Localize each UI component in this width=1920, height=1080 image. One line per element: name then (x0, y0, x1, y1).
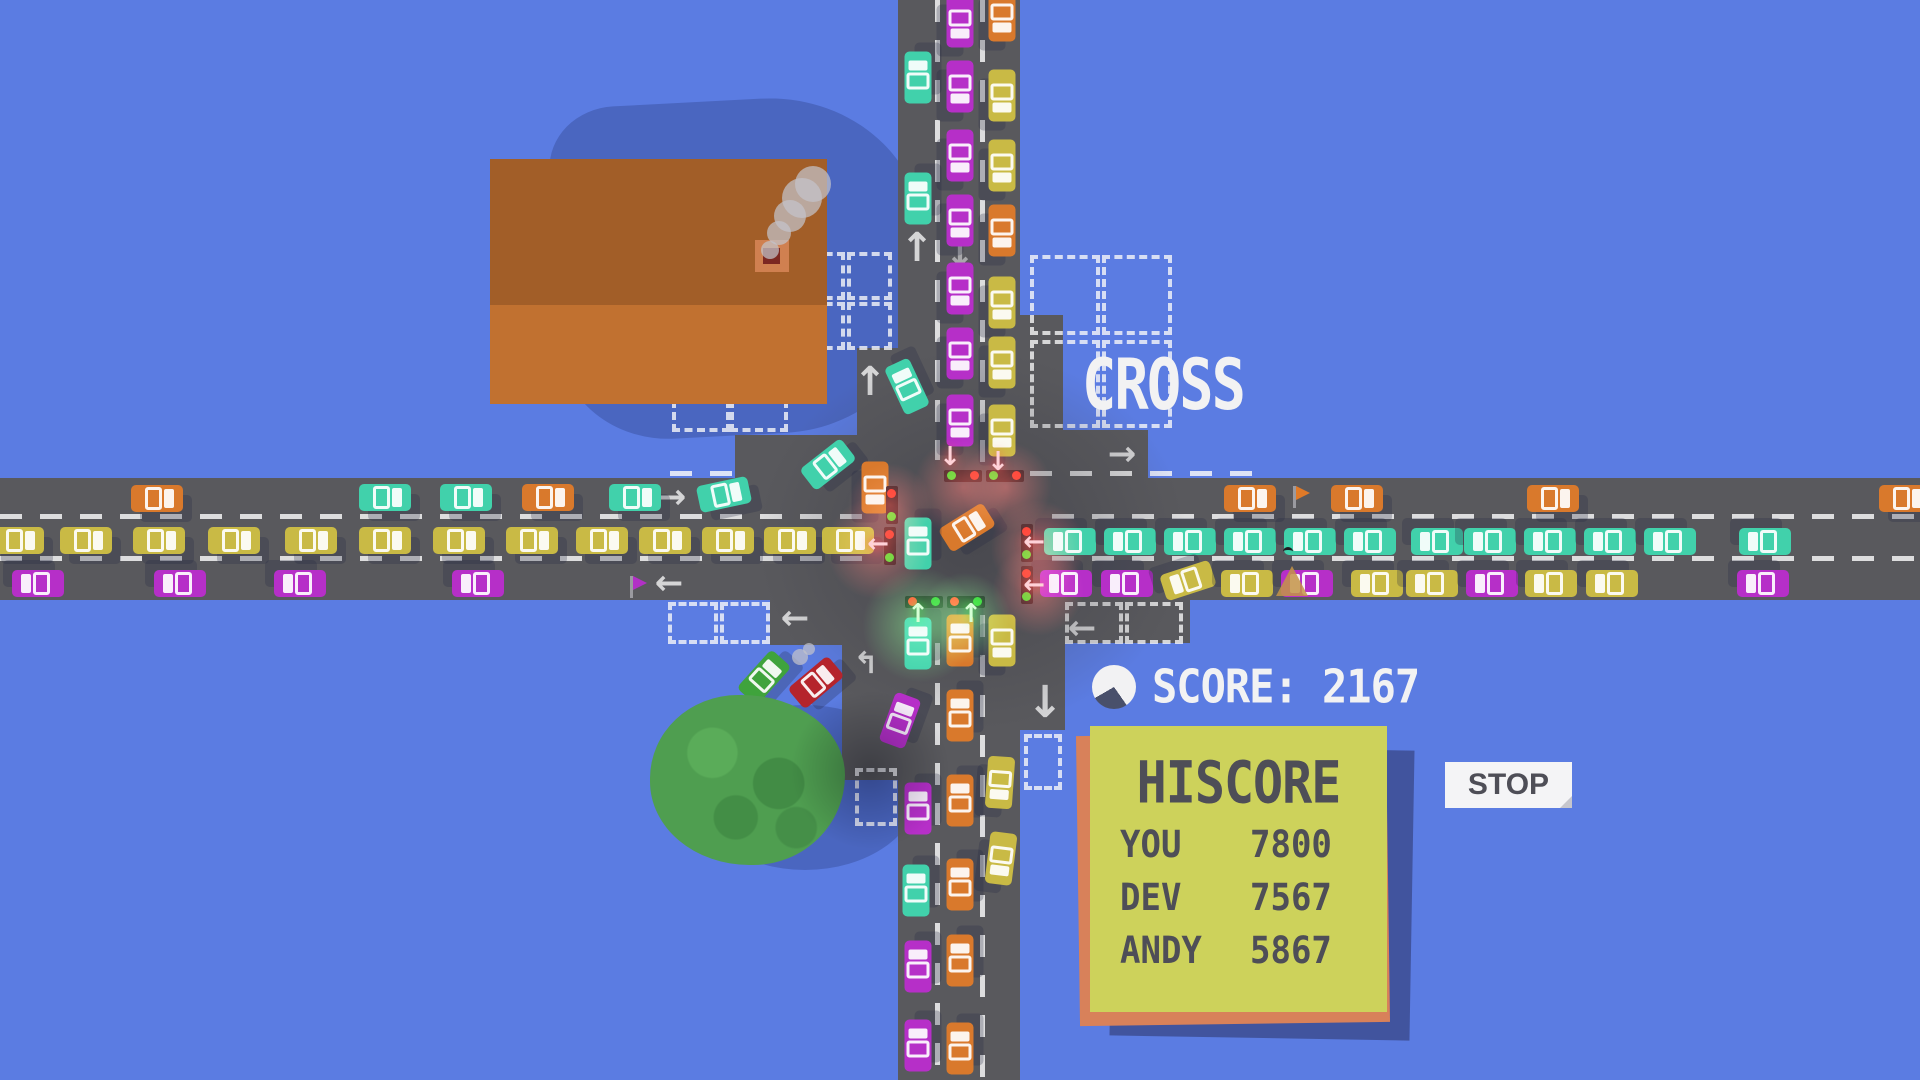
crosswalk-square (1030, 340, 1100, 428)
stop-button[interactable]: STOP (1445, 762, 1572, 808)
car-windshield (950, 698, 970, 708)
car-cabin-window (991, 83, 1013, 101)
car (1040, 570, 1092, 597)
car (905, 518, 932, 570)
car-windshield (1653, 532, 1663, 552)
car-windshield (1353, 532, 1363, 552)
car-windshield (908, 1028, 928, 1038)
car (154, 570, 206, 597)
traffic-light-lamp (885, 530, 894, 539)
traffic-light (986, 470, 1024, 482)
traffic-light-lamp (950, 597, 959, 606)
car-cabin-window (949, 9, 971, 27)
car (359, 527, 411, 554)
car-windshield (950, 29, 970, 39)
smoke-puff (795, 166, 831, 202)
car-windshield (1257, 489, 1267, 509)
lane-arrow: ↰ (853, 649, 878, 679)
car-cabin-window (949, 143, 971, 161)
lane-arrow: → (1108, 437, 1137, 471)
car-cabin-window (949, 74, 971, 92)
car-cabin-window (33, 572, 51, 594)
car-windshield (992, 438, 1012, 448)
car-cabin-window (907, 803, 929, 821)
lane-arrow: ← (1068, 611, 1097, 645)
car (1351, 570, 1403, 597)
car-windshield (797, 531, 807, 551)
lane-line (1052, 514, 1920, 519)
car-windshield (473, 488, 483, 508)
car (947, 1023, 974, 1075)
car-cabin-window (623, 486, 641, 508)
car-windshield (1113, 532, 1123, 552)
car-windshield (865, 495, 885, 505)
car (905, 1020, 932, 1072)
car-cabin-window (590, 529, 608, 551)
car (1224, 528, 1276, 555)
car (905, 941, 932, 993)
car-windshield (950, 361, 970, 371)
car-cabin-window (1758, 572, 1776, 594)
traffic-light (884, 527, 896, 565)
car-windshield (283, 574, 293, 594)
car-windshield (1049, 574, 1059, 594)
lane-line (1052, 556, 1920, 561)
car-windshield (1593, 532, 1603, 552)
car-cabin-window (907, 538, 929, 556)
car-windshield (1473, 532, 1483, 552)
car-cabin-window (949, 955, 971, 973)
crosswalk-square (1102, 340, 1172, 428)
traffic-light-lamp (973, 597, 982, 606)
lane-arrow: ← (781, 601, 810, 635)
car-cabin-window (175, 572, 193, 594)
crosswalk-square (1125, 602, 1183, 644)
car-windshield (1475, 574, 1485, 594)
car-windshield (21, 574, 31, 594)
car (1464, 528, 1516, 555)
crosswalk-square (1024, 734, 1062, 790)
car (905, 618, 932, 670)
car-windshield (1748, 532, 1758, 552)
building-roof-bottom (490, 305, 827, 404)
car-cabin-window (1305, 530, 1323, 552)
car-windshield (1534, 574, 1544, 594)
car-cabin-window (949, 710, 971, 728)
car-cabin-window (1238, 487, 1256, 509)
car (1525, 570, 1577, 597)
car (208, 527, 260, 554)
car-windshield (908, 949, 928, 959)
traffic-light-lamp (1022, 592, 1031, 601)
car-cabin-window (1605, 530, 1623, 552)
traffic-light-lamp (970, 471, 979, 480)
car (903, 865, 930, 917)
car-windshield (25, 531, 35, 551)
car (522, 484, 574, 511)
car-cabin-window (949, 635, 971, 653)
car (133, 527, 185, 554)
car (1101, 570, 1153, 597)
car-cabin-window (1245, 530, 1263, 552)
car-cabin-window (991, 3, 1013, 21)
car (947, 61, 974, 113)
car-cabin-window (373, 486, 391, 508)
lane-line (935, 0, 940, 460)
car-cabin-window (949, 208, 971, 226)
car-windshield (950, 867, 970, 877)
lane-line (0, 556, 880, 561)
car-windshield (555, 488, 565, 508)
car (947, 859, 974, 911)
car-windshield (163, 574, 173, 594)
car-windshield (392, 488, 402, 508)
car-cabin-window (1665, 530, 1683, 552)
car-windshield (908, 526, 928, 536)
car-windshield (906, 873, 926, 883)
car (12, 570, 64, 597)
lane-line (980, 0, 985, 468)
car-cabin-window (1546, 572, 1564, 594)
car (905, 783, 932, 835)
crosswalk-square (668, 602, 718, 644)
car (1104, 528, 1156, 555)
car (989, 337, 1016, 389)
car (822, 527, 874, 554)
car-windshield (1533, 532, 1543, 552)
car-cabin-window (295, 572, 313, 594)
car-windshield (908, 791, 928, 801)
car-windshield (1364, 489, 1374, 509)
car (1411, 528, 1463, 555)
car (1224, 485, 1276, 512)
car (1406, 570, 1458, 597)
car-cabin-window (778, 529, 796, 551)
car-windshield (992, 310, 1012, 320)
car-cabin-window (907, 193, 929, 211)
car (285, 527, 337, 554)
crosswalk-square (1102, 255, 1172, 335)
car-cabin-window (1061, 572, 1079, 594)
car-windshield (642, 488, 652, 508)
car-windshield (166, 531, 176, 551)
car-cabin-window (1125, 530, 1143, 552)
car-cabin-window (864, 475, 886, 493)
car-cabin-window (1485, 530, 1503, 552)
traffic-light (886, 486, 898, 524)
traffic-light-lamp (1012, 471, 1021, 480)
car-windshield (93, 531, 103, 551)
car-windshield (950, 228, 970, 238)
car (947, 775, 974, 827)
lane-arrow: ↑ (900, 228, 934, 268)
road-segment (842, 600, 898, 780)
traffic-light (1021, 524, 1033, 562)
car-cabin-window (949, 1043, 971, 1061)
car-cabin-window (991, 290, 1013, 308)
car (947, 0, 974, 48)
traffic-light-lamp (1022, 569, 1031, 578)
car (947, 328, 974, 380)
car-windshield (908, 181, 928, 191)
car-windshield (729, 481, 743, 503)
car (639, 527, 691, 554)
car-windshield (950, 163, 970, 173)
car-windshield (1595, 574, 1605, 594)
lane-arrow: ↓ (1027, 681, 1064, 725)
car (947, 615, 974, 667)
car-cabin-window (1893, 487, 1911, 509)
car-cabin-window (1372, 572, 1390, 594)
car-windshield (1560, 489, 1570, 509)
car (1331, 485, 1383, 512)
flag-pennant (633, 576, 647, 590)
car (989, 277, 1016, 329)
car-cabin-window (1760, 530, 1778, 552)
car-cabin-window (836, 529, 854, 551)
car-cabin-window (454, 486, 472, 508)
car-cabin-window (653, 529, 671, 551)
car (1739, 528, 1791, 555)
car (452, 570, 504, 597)
car-windshield (950, 623, 970, 633)
car-cabin-window (991, 350, 1013, 368)
car (1586, 570, 1638, 597)
car-windshield (950, 94, 970, 104)
lane-line (980, 615, 985, 1080)
car-cabin-window (147, 529, 165, 551)
car (764, 527, 816, 554)
car-windshield (735, 531, 745, 551)
car-cabin-window (74, 529, 92, 551)
car-cabin-window (1545, 530, 1563, 552)
car-cabin-window (716, 529, 734, 551)
car (989, 140, 1016, 192)
car-windshield (1233, 532, 1243, 552)
car-windshield (992, 173, 1012, 183)
game-scene: →→←←←↑↑↓↓↰ ←←←↓↓↑↑ (0, 0, 1920, 1080)
car-cabin-window (1345, 487, 1363, 509)
car (433, 527, 485, 554)
car (274, 570, 326, 597)
traffic-light-lamp (885, 553, 894, 562)
car-cabin-window (991, 218, 1013, 236)
car-cabin-window (520, 529, 538, 551)
car-cabin-window (907, 72, 929, 90)
car-cabin-window (536, 486, 554, 508)
car-cabin-window (907, 1040, 929, 1058)
car-windshield (609, 531, 619, 551)
car-windshield (1053, 532, 1063, 552)
car-cabin-window (1185, 530, 1203, 552)
car (609, 484, 661, 511)
car (440, 484, 492, 511)
car-windshield (241, 531, 251, 551)
crosswalk-square (847, 302, 892, 350)
car (576, 527, 628, 554)
car-windshield (466, 531, 476, 551)
car (1737, 570, 1789, 597)
traffic-light (944, 470, 982, 482)
lane-line (935, 643, 940, 1080)
lane-line (0, 514, 875, 519)
lane-line (1030, 471, 1260, 476)
car-windshield (950, 296, 970, 306)
car (1879, 485, 1920, 512)
car (989, 405, 1016, 457)
car-cabin-window (1365, 530, 1383, 552)
car-windshield (950, 783, 970, 793)
car-cabin-window (1122, 572, 1140, 594)
car (862, 462, 889, 514)
car (131, 485, 183, 512)
traffic-light-lamp (887, 512, 896, 521)
car-cabin-window (709, 483, 731, 508)
traffic-light-lamp (931, 597, 940, 606)
car (506, 527, 558, 554)
car-windshield (1360, 574, 1370, 594)
traffic-light-lamp (1022, 550, 1031, 559)
car-windshield (539, 531, 549, 551)
car (1221, 570, 1273, 597)
car-windshield (392, 531, 402, 551)
car-cabin-window (447, 529, 465, 551)
car-windshield (989, 789, 1010, 800)
crosswalk-square (720, 602, 770, 644)
car (1044, 528, 1096, 555)
car-windshield (950, 428, 970, 438)
car (989, 205, 1016, 257)
car-windshield (318, 531, 328, 551)
traffic-light-lamp (908, 597, 917, 606)
car (359, 484, 411, 511)
car-windshield (1420, 532, 1430, 552)
car (947, 935, 974, 987)
flag-pennant (1296, 486, 1310, 500)
crosswalk-square (1030, 255, 1100, 335)
car-cabin-window (222, 529, 240, 551)
car (989, 0, 1016, 42)
traffic-light (947, 596, 985, 608)
car-cabin-window (991, 418, 1013, 436)
car-windshield (992, 103, 1012, 113)
car-cabin-window (991, 153, 1013, 171)
car-cabin-window (949, 276, 971, 294)
traffic-light (905, 596, 943, 608)
car-windshield (989, 864, 1010, 876)
car-windshield (1912, 489, 1920, 509)
car (947, 195, 974, 247)
car-windshield (1293, 532, 1303, 552)
car (989, 615, 1016, 667)
car (947, 395, 974, 447)
crosswalk-square (847, 252, 892, 300)
car (1527, 485, 1579, 512)
car-cabin-window (473, 572, 491, 594)
car (947, 690, 974, 742)
car-cabin-window (949, 341, 971, 359)
car-cabin-window (991, 628, 1013, 646)
car-windshield (164, 489, 174, 509)
car-windshield (908, 60, 928, 70)
car-cabin-window (145, 487, 163, 509)
car-windshield (1110, 574, 1120, 594)
car-cabin-window (949, 795, 971, 813)
car-cabin-window (1607, 572, 1625, 594)
car-cabin-window (1541, 487, 1559, 509)
traffic-light-lamp (887, 489, 896, 498)
car-windshield (1173, 532, 1183, 552)
crosswalk-square (855, 768, 897, 826)
car-windshield (992, 648, 1012, 658)
car-windshield (908, 626, 928, 636)
car-windshield (1746, 574, 1756, 594)
smoke-puff (803, 643, 815, 655)
car-windshield (1230, 574, 1240, 594)
car-cabin-window (1242, 572, 1260, 594)
car-cabin-window (907, 961, 929, 979)
car-cabin-window (1065, 530, 1083, 552)
car-cabin-window (949, 879, 971, 897)
lane-line (670, 471, 738, 476)
car-windshield (950, 943, 970, 953)
car-cabin-window (989, 845, 1013, 865)
car-cabin-window (905, 885, 927, 903)
car-windshield (461, 574, 471, 594)
car-windshield (992, 370, 1012, 380)
lane-arrow: ← (655, 566, 684, 600)
car (1344, 528, 1396, 555)
car (947, 263, 974, 315)
warning-triangle-icon (1276, 566, 1308, 596)
car-cabin-window (299, 529, 317, 551)
car (905, 52, 932, 104)
tree (650, 695, 845, 865)
car-cabin-window (373, 529, 391, 551)
car-cabin-window (6, 529, 24, 551)
car (702, 527, 754, 554)
car (0, 527, 44, 554)
car-windshield (855, 531, 865, 551)
car-windshield (950, 1031, 970, 1041)
traffic-light-lamp (947, 471, 956, 480)
car-windshield (672, 531, 682, 551)
lane-arrow: ↑ (853, 362, 887, 402)
car-cabin-window (989, 769, 1012, 788)
game-viewport: { "hud": { "title": "CROSS", "score_labe… (0, 0, 1920, 1080)
car (1524, 528, 1576, 555)
traffic-light-lamp (1022, 527, 1031, 536)
car (947, 130, 974, 182)
car-windshield (1415, 574, 1425, 594)
car-cabin-window (1487, 572, 1505, 594)
lane-arrow: → (658, 480, 687, 514)
car (1466, 570, 1518, 597)
car (1164, 528, 1216, 555)
traffic-light-lamp (989, 471, 998, 480)
bird (1283, 547, 1293, 556)
car-cabin-window (907, 638, 929, 656)
car (989, 70, 1016, 122)
car (60, 527, 112, 554)
car (905, 173, 932, 225)
car (985, 756, 1016, 810)
car-cabin-window (949, 408, 971, 426)
traffic-light (1021, 566, 1033, 604)
car-cabin-window (1432, 530, 1450, 552)
car-cabin-window (1427, 572, 1445, 594)
car-windshield (992, 23, 1012, 33)
